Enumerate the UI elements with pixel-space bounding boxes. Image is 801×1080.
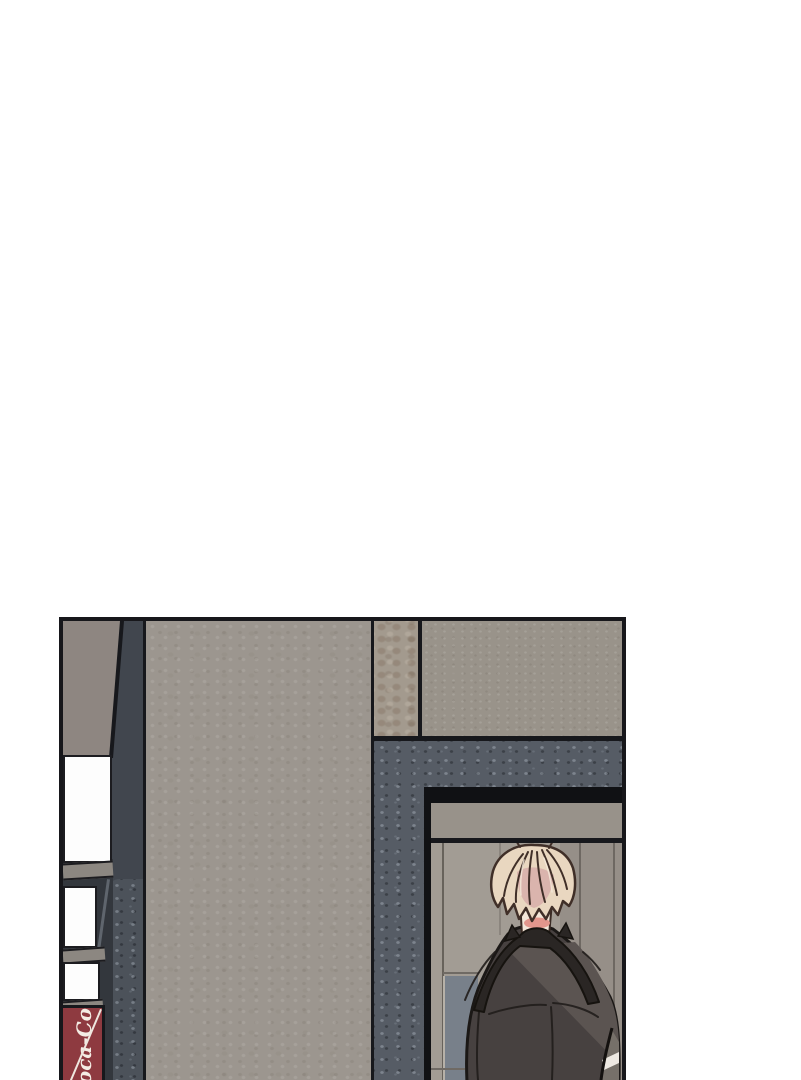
coke-sign: Coca-Cola bbox=[63, 1005, 105, 1080]
door-frame-top-bar bbox=[424, 787, 622, 803]
machine-window-1 bbox=[63, 755, 112, 863]
comic-page: Coca-Cola bbox=[0, 0, 801, 1080]
machine-window-3 bbox=[63, 962, 100, 1001]
dark-pillar-speckled-lower bbox=[109, 879, 145, 1080]
door-frame-left-jamb bbox=[424, 787, 431, 1080]
upper-wall-grey bbox=[422, 621, 622, 738]
machine-shelf-a bbox=[63, 860, 114, 880]
door-lintel bbox=[431, 803, 622, 838]
comic-panel: Coca-Cola bbox=[59, 617, 626, 1080]
collar-point-right bbox=[558, 923, 573, 939]
doorway-interior bbox=[431, 843, 622, 1080]
concrete-column bbox=[146, 621, 371, 1080]
machine-window-2 bbox=[63, 886, 97, 948]
hair bbox=[491, 843, 575, 921]
mottled-wall-strip bbox=[374, 621, 418, 738]
man-from-behind bbox=[431, 843, 622, 1080]
